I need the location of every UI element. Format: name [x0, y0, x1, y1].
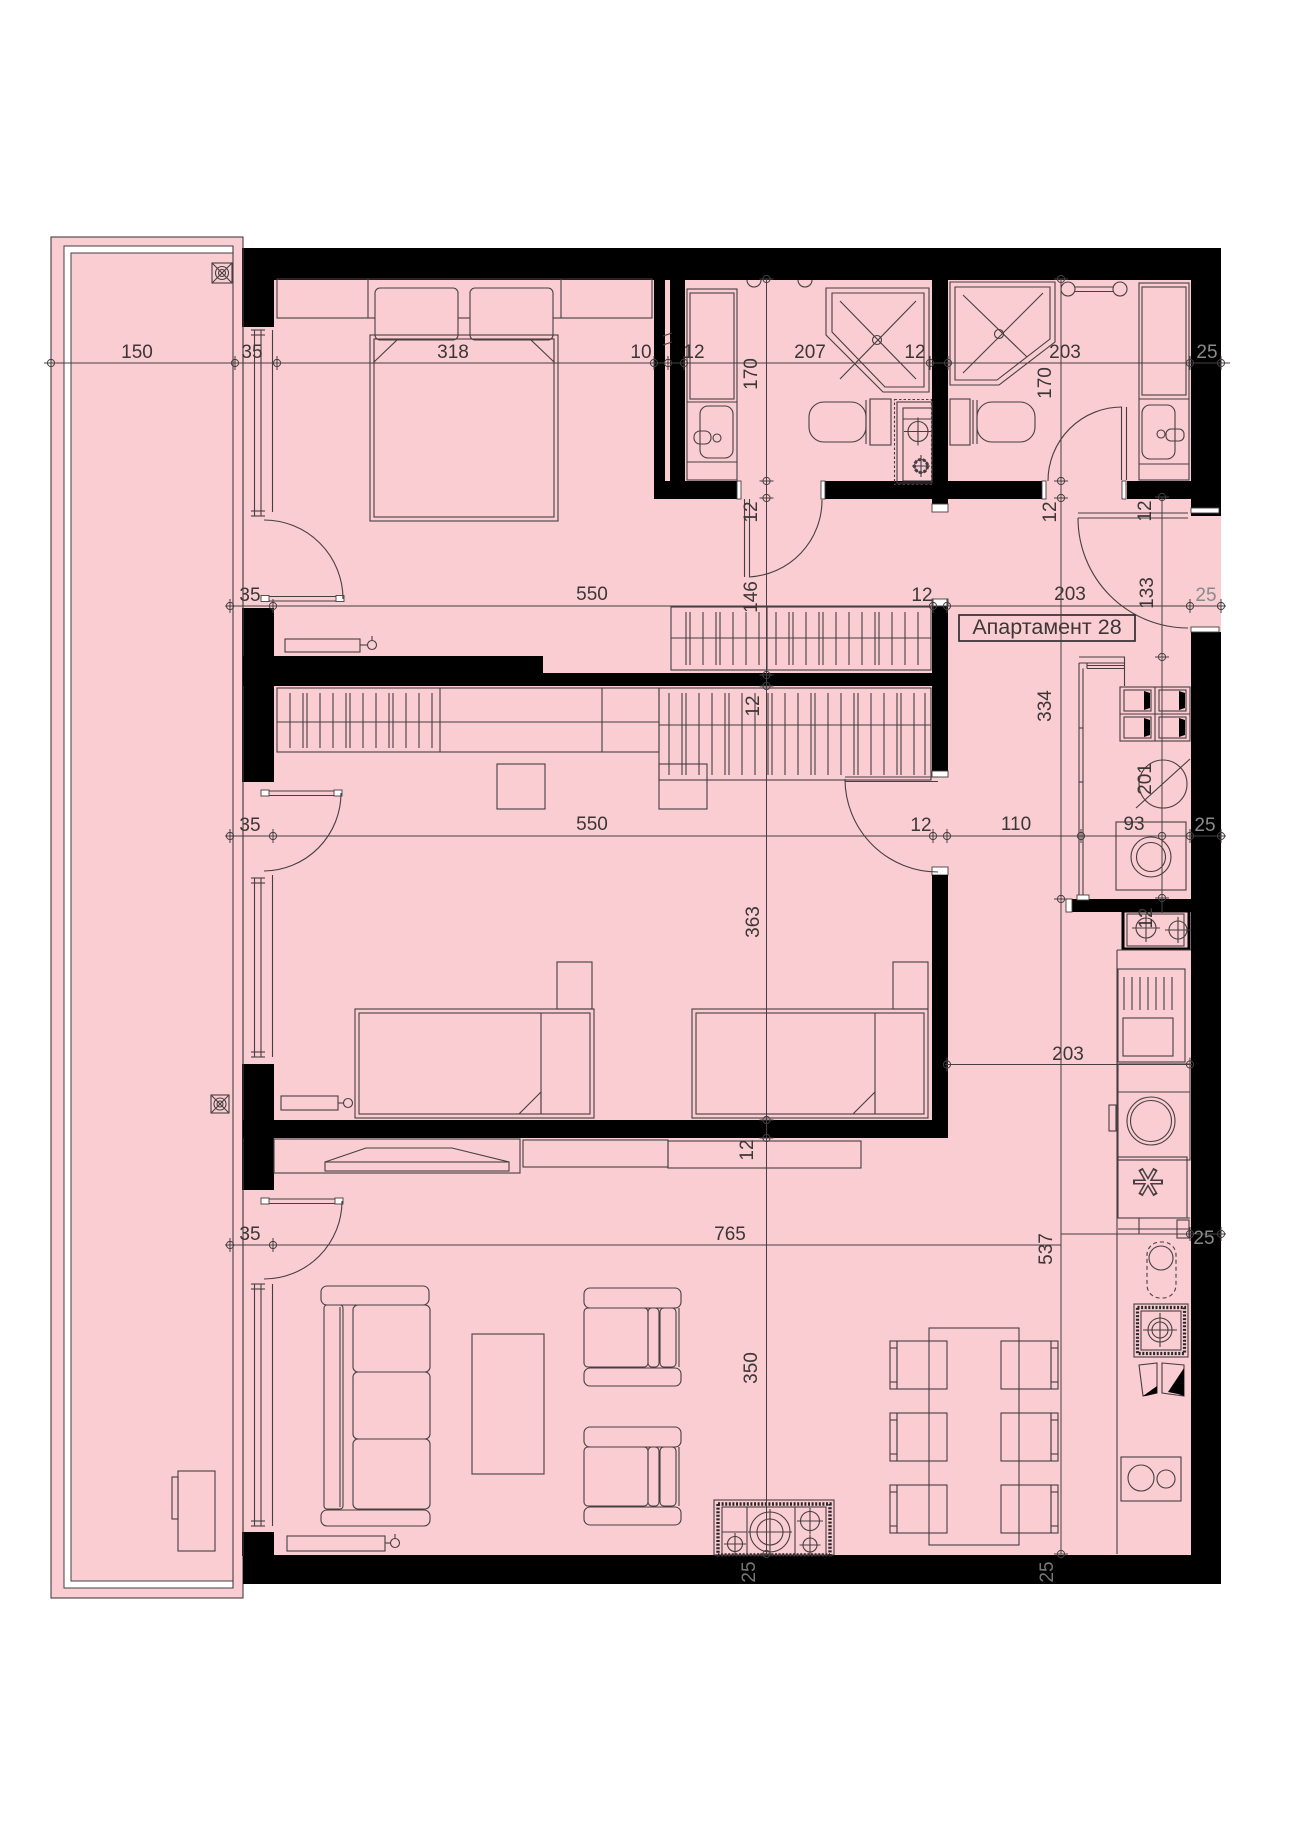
svg-text:363: 363	[743, 906, 764, 938]
svg-text:110: 110	[1001, 814, 1031, 835]
svg-text:12: 12	[737, 1139, 758, 1160]
svg-text:35: 35	[239, 815, 260, 836]
svg-text:12: 12	[911, 585, 932, 606]
svg-text:12: 12	[1135, 500, 1156, 521]
svg-text:550: 550	[576, 584, 608, 605]
svg-text:10: 10	[630, 342, 651, 363]
svg-text:25: 25	[739, 1561, 760, 1582]
svg-text:25: 25	[1194, 815, 1215, 836]
svg-text:765: 765	[714, 1224, 746, 1245]
svg-text:12: 12	[1136, 907, 1157, 928]
svg-text:25: 25	[1195, 585, 1216, 606]
svg-text:12: 12	[910, 815, 931, 836]
svg-text:35: 35	[239, 1224, 260, 1245]
svg-text:133: 133	[1137, 577, 1158, 609]
svg-text:12: 12	[1040, 501, 1061, 522]
svg-text:350: 350	[741, 1352, 762, 1384]
svg-text:170: 170	[1035, 367, 1056, 399]
svg-text:93: 93	[1123, 814, 1144, 835]
svg-text:25: 25	[1193, 1228, 1214, 1249]
svg-text:146: 146	[741, 581, 762, 613]
svg-text:Апартамент 28: Апартамент 28	[972, 615, 1121, 639]
svg-text:550: 550	[576, 814, 608, 835]
svg-text:201: 201	[1135, 763, 1156, 795]
svg-text:203: 203	[1052, 1044, 1084, 1065]
svg-text:203: 203	[1049, 342, 1081, 363]
svg-text:25: 25	[1196, 342, 1217, 363]
svg-text:170: 170	[741, 358, 762, 390]
svg-text:25: 25	[1037, 1561, 1058, 1582]
svg-text:12: 12	[743, 695, 764, 716]
svg-text:537: 537	[1036, 1233, 1057, 1265]
svg-text:12: 12	[741, 501, 762, 522]
svg-text:12: 12	[904, 342, 925, 363]
svg-text:12: 12	[683, 342, 704, 363]
svg-text:150: 150	[121, 342, 153, 363]
svg-text:35: 35	[239, 585, 260, 606]
svg-text:35: 35	[241, 342, 262, 363]
svg-text:207: 207	[794, 342, 826, 363]
svg-text:318: 318	[437, 342, 469, 363]
svg-text:203: 203	[1054, 584, 1086, 605]
svg-text:334: 334	[1035, 690, 1056, 722]
